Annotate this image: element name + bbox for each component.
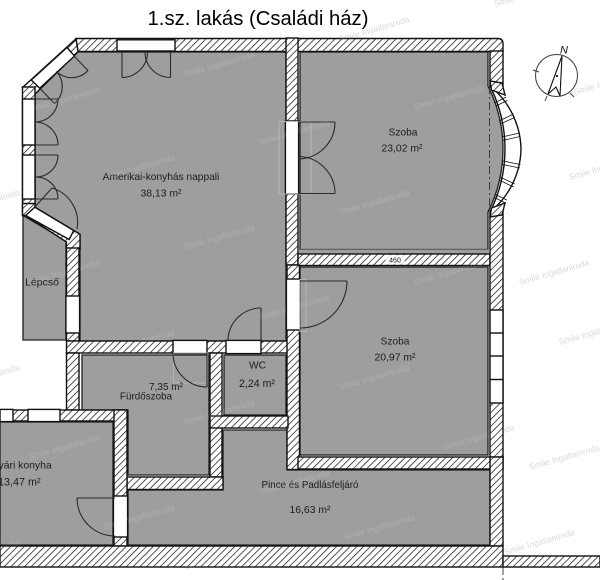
svg-text:WC: WC bbox=[249, 361, 266, 372]
svg-text:2,24 m²: 2,24 m² bbox=[239, 378, 275, 390]
svg-text:20,97 m²: 20,97 m² bbox=[374, 353, 416, 364]
svg-text:460: 460 bbox=[389, 258, 401, 265]
svg-text:N: N bbox=[560, 45, 568, 57]
svg-text:38,13 m²: 38,13 m² bbox=[140, 189, 182, 200]
svg-text:23,02 m²: 23,02 m² bbox=[381, 144, 423, 155]
svg-text:Szoba: Szoba bbox=[381, 337, 410, 348]
svg-text:Nyári konyha: Nyári konyha bbox=[0, 461, 52, 472]
svg-text:13,47 m²: 13,47 m² bbox=[0, 477, 41, 489]
svg-text:Fürdőszoba: Fürdőszoba bbox=[120, 392, 173, 403]
svg-text:Szoba: Szoba bbox=[389, 128, 418, 139]
svg-text:1.sz. lakás (Családi ház): 1.sz. lakás (Családi ház) bbox=[148, 8, 369, 30]
svg-text:16,63 m²: 16,63 m² bbox=[289, 505, 331, 516]
